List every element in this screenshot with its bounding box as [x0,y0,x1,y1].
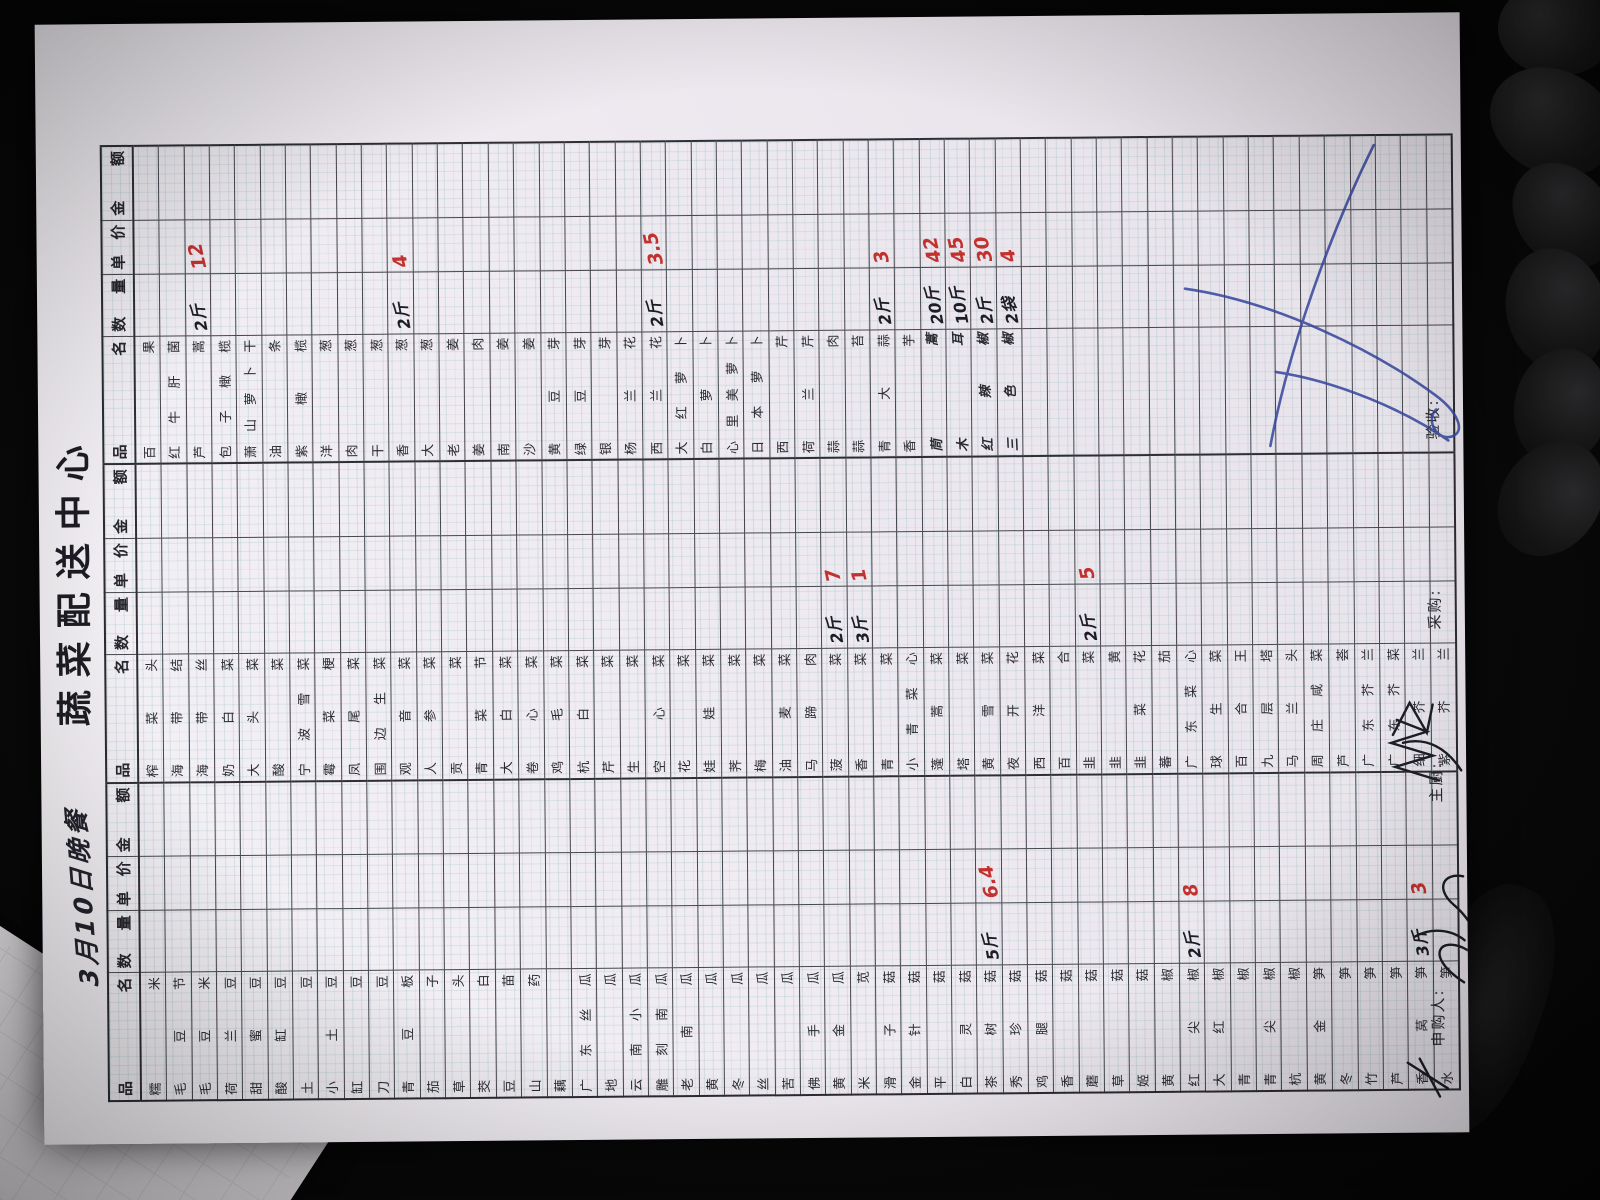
item-name: 油条 [262,335,288,463]
quantity-cell: 5斤 [976,903,1002,965]
quantity-cell [773,905,799,967]
amount-cell [159,145,185,219]
quantity-cell [1401,263,1427,325]
quantity-cell [999,585,1025,647]
amount-cell [665,141,691,215]
amount-cell [361,144,387,218]
quantity-cell [1052,902,1078,964]
unit-price-cell [1176,529,1202,583]
header-price: 单价 [107,857,139,911]
quantity-cell [495,907,521,969]
item-name: 酸缸豆 [267,971,293,1099]
item-name: 秀珍菇 [1002,965,1028,1093]
item-name: 日本萝卜 [743,331,769,459]
unit-price-cell [748,851,774,905]
item-name [1149,327,1175,455]
inspector-label: 验收: [1422,398,1443,439]
unit-price-cell: 42 [919,213,945,267]
unit-price-cell: 3 [869,213,895,267]
amount-cell [212,463,238,537]
amount-cell [189,782,215,856]
unit-price-cell [618,534,644,588]
quantity-cell [1303,582,1329,644]
quantity-cell [162,592,188,654]
unit-price-cell [1252,528,1278,582]
amount-cell [1051,774,1077,848]
quantity-cell [545,907,571,969]
item-name: 竹笋 [1357,962,1383,1090]
unit-price-cell [238,537,264,591]
unit-price-cell [444,854,470,908]
amount-cell [1426,134,1452,208]
item-name: 缸豆 [343,971,369,1099]
quantity-cell [368,908,394,970]
amount-cell [1276,454,1302,528]
item-name: 九层塔 [1253,644,1279,772]
quantity-cell [771,587,797,649]
unit-price-cell [925,850,951,904]
unit-price-cell [1097,211,1123,265]
amount-cell [744,459,770,533]
quantity-cell [1201,583,1227,645]
amount-cell [1400,135,1426,209]
item-name: 黄豆芽 [540,332,566,460]
quantity-cell [1049,584,1075,646]
unit-price-cell [615,216,641,270]
quantity-cell [286,273,312,335]
item-name: 香芋 [895,329,921,457]
amount-cell [412,143,438,217]
item-name: 大头菜 [239,653,265,781]
amount-cell [341,781,367,855]
quantity-cell [748,905,774,967]
quantity-cell [1300,264,1326,326]
unit-price-cell [1350,209,1376,263]
amount-cell [1381,772,1407,846]
quantity-cell [1331,900,1357,962]
item-name: 小土豆 [318,971,344,1099]
quantity-cell [621,906,647,968]
quantity-cell [824,904,850,966]
amount-cell [646,778,672,852]
quantity-cell [695,587,721,649]
amount-cell [1279,772,1305,846]
amount-cell [643,460,669,534]
quantity-cell [1427,263,1453,325]
unit-price-cell [593,534,619,588]
unit-price-cell [517,535,543,589]
item-name: 金针菇 [901,966,927,1094]
unit-price-cell [365,536,391,590]
amount-cell [235,145,261,219]
item-name: 白萝卜 [692,331,718,459]
unit-price-cell [463,217,489,271]
amount-cell [443,780,469,854]
unit-price-cell: 6.4 [976,849,1002,903]
amount-cell [846,458,872,532]
unit-price-cell [1052,848,1078,902]
header-price: 单价 [101,220,133,274]
item-name: 刀豆 [369,971,395,1099]
item-name: 姬菇 [1129,964,1155,1092]
quantity-cell [191,910,217,972]
unit-price-cell [1046,212,1072,266]
unit-price-cell [266,855,292,909]
unit-price-cell [136,538,162,592]
unit-price-cell [793,214,819,268]
quantity-cell [314,591,340,653]
item-name: 藕 [546,969,572,1097]
unit-price-cell [1426,209,1452,263]
amount-cell [1026,775,1052,849]
unit-price-cell [1432,845,1458,899]
item-name: 鸡毛菜 [543,651,569,779]
unit-price-cell [818,214,844,268]
quantity-cell: 3斤 [1407,899,1433,961]
header-amount: 金 额 [106,783,139,857]
item-name: 云南小瓜 [622,968,648,1096]
unit-price-cell [367,854,393,908]
unit-price-cell [545,853,571,907]
quantity-cell [1151,583,1177,645]
item-name [1073,328,1099,456]
unit-price-cell: 5 [1074,530,1100,584]
amount-cell [215,782,241,856]
requester-label: 申购人: [1427,988,1449,1046]
unit-price-cell [393,854,419,908]
item-name: 糯米 [140,973,167,1101]
item-name: 紫橄榄 [287,335,313,463]
item-name: 观音菜 [391,652,417,780]
unit-price-cell [311,218,337,272]
amount-cell [1375,135,1401,209]
unit-price-cell [1148,211,1174,265]
quantity-cell [1047,266,1073,328]
amount-cell [513,142,539,216]
unit-price-cell [669,533,695,587]
unit-price-cell [165,856,191,910]
item-name: 韭黄 [1101,646,1127,774]
item-name: 西兰花 [642,332,668,460]
quantity-cell [875,904,901,966]
item-name: 韭菜 [1075,646,1101,774]
item-name: 冬瓜 [723,967,749,1095]
amount-cell [922,457,948,531]
item-name: 青菜 [873,648,899,776]
amount-cell [133,146,159,220]
unit-price-cell [489,217,515,271]
item-name-handwritten: 三色椒 [994,328,1025,457]
amount-cell [843,139,869,213]
unit-price-cell [948,531,974,585]
item-name: 干葱 [363,334,389,462]
item-name: 海带结 [163,654,189,782]
quantity-cell [467,589,493,651]
quantity-cell [1356,900,1382,962]
quantity-cell [1097,265,1123,327]
unit-price-cell [565,216,591,270]
unit-price-cell [570,853,596,907]
amount-cell [893,139,919,213]
amount-cell [339,462,365,536]
item-name: 荠菜 [721,649,747,777]
quantity-cell: 2斤 [1179,901,1205,963]
quantity-cell [413,271,439,333]
unit-price-cell [1249,210,1275,264]
amount-cell [899,776,925,850]
amount-cell [722,777,748,851]
item-name: 老南瓜 [673,968,699,1096]
quantity-cell [1125,584,1151,646]
item-name: 蒜苔 [844,330,870,458]
unit-price-cell [717,215,743,269]
amount-cell [970,138,996,212]
coil-ring [1498,0,1600,76]
unit-price-cell [520,853,546,907]
item-name: 茄子 [419,970,445,1098]
item-name: 细芥兰 [1405,643,1431,771]
item-name: 大红椒 [1205,963,1231,1091]
photo-of-order-form: 沙 米 大豆 米 廿口 3月10日晚餐 蔬菜配送中心 品 名数量单价金 额品 名… [0,0,1600,1200]
item-name: 黄雪菜 [974,647,1000,775]
unit-price-cell [1128,848,1154,902]
amount-cell [392,780,418,854]
amount-cell [1048,456,1074,530]
item-name [1377,325,1403,453]
amount-cell [539,142,565,216]
unit-price-cell: 12 [185,219,211,273]
unit-price-cell [491,535,517,589]
amount-cell [995,138,1021,212]
amount-cell [564,142,590,216]
amount-cell [541,461,567,535]
amount-cell [871,458,897,532]
quantity-cell [312,272,338,334]
unit-price-cell [1026,849,1052,903]
item-name: 卷心菜 [518,651,544,779]
unit-price-cell [1201,529,1227,583]
item-name: 周庄咸菜 [1303,644,1329,772]
amount-cell [135,464,161,538]
unit-price-cell [187,538,213,592]
unit-price-cell [1122,211,1148,265]
unit-price-cell [973,531,999,585]
amount-cell [364,462,390,536]
quantity-cell [1123,265,1149,327]
quantity-cell [188,592,214,654]
quantity-cell [1199,265,1225,327]
item-name: 鸡腿菇 [1027,965,1053,1093]
quantity-cell [1148,265,1174,327]
quantity-cell [593,588,619,650]
quantity-cell [723,905,749,967]
amount-cell [519,779,545,853]
unit-price-cell [694,533,720,587]
amount-cell [696,777,722,851]
item-name: 白灵菇 [951,965,977,1093]
quantity-cell [1328,582,1354,644]
unit-price-cell [1021,212,1047,266]
unit-price-cell [1102,848,1128,902]
quantity-cell [849,904,875,966]
unit-price-cell [897,531,923,585]
amount-cell [1198,136,1224,210]
item-name [1047,328,1073,456]
unit-price-cell [337,218,363,272]
item-name: 毛豆节 [166,972,192,1100]
quantity-cell [1154,902,1180,964]
item-name [1301,326,1327,454]
amount-cell [1355,772,1381,846]
item-name: 百果 [134,336,161,464]
unit-price-cell [1153,848,1179,902]
amount-cell [589,142,615,216]
quantity-cell [165,910,191,972]
amount-cell [311,144,337,218]
amount-cell [415,462,441,536]
item-name: 西洋菜 [1025,646,1051,774]
quantity-cell [1024,584,1050,646]
unit-price-cell [1381,846,1407,900]
header-qty: 数量 [107,911,140,973]
unit-price-cell [691,215,717,269]
amount-cell [998,457,1024,531]
unit-price-cell [1049,530,1075,584]
item-name: 海带丝 [188,654,214,782]
amount-cell [240,781,266,855]
amount-cell [1299,135,1325,209]
quantity-cell [1306,900,1332,962]
item-name [1351,325,1377,453]
quantity-cell: 2斤 [388,272,414,334]
amount-cell [719,459,745,533]
quantity-cell [444,908,470,970]
unit-price-cell [1024,530,1050,584]
item-name: 平菇 [926,966,952,1094]
amount-cell [668,459,694,533]
item-name: 凤尾菜 [340,652,366,780]
item-name: 银芽 [591,332,617,460]
header-price: 单价 [104,538,136,592]
unit-price-cell [210,219,236,273]
amount-cell [972,457,998,531]
item-name: 荷兰芹 [794,330,820,458]
amount-cell [792,140,818,214]
amount-cell [767,140,793,214]
quantity-cell [517,589,543,651]
item-name: 青豆板 [394,970,420,1098]
quantity-cell [1379,581,1405,643]
item-name: 香菜 [847,648,873,776]
amount-cell [617,460,643,534]
item-name [1225,326,1251,454]
item-name: 青椒 [1230,963,1256,1091]
unit-price-cell [539,216,565,270]
header-amount: 金 额 [103,464,136,538]
amount-cell [691,141,717,215]
unit-price-cell [1328,528,1354,582]
unit-price-cell [390,536,416,590]
amount-cell [1178,773,1204,847]
item-name: 包子橄榄 [211,335,237,463]
amount-cell [1147,137,1173,211]
quantity-cell [137,592,163,654]
amount-cell [567,460,593,534]
quantity-cell [261,273,287,335]
item-name: 紫芥兰 [1430,643,1457,771]
quantity-cell [340,590,366,652]
quantity-cell [571,907,597,969]
quantity-cell [1176,583,1202,645]
amount-cell [1046,138,1072,212]
unit-price-cell [263,537,289,591]
amount-cell [516,461,542,535]
unit-price-cell [289,537,315,591]
amount-cell [164,782,190,856]
quantity-cell [948,585,974,647]
unit-price-cell [1224,210,1250,264]
item-name: 丝瓜 [749,967,775,1095]
item-name [1174,327,1200,455]
quantity-cell [1224,264,1250,326]
item-name: 生菜 [619,650,645,778]
amount-cell [488,143,514,217]
amount-cell [640,141,666,215]
quantity-cell [590,270,616,332]
unit-price-cell [900,850,926,904]
item-name: 黄椒 [1154,964,1180,1092]
item-name: 蒜肉 [819,330,845,458]
quantity-cell [973,585,999,647]
quantity-cell [1227,583,1253,645]
amount-cell [1305,772,1331,846]
unit-price-cell [798,851,824,905]
unit-price-cell [314,537,340,591]
amount-cell [1378,453,1404,527]
unit-price-cell [567,534,593,588]
unit-price-cell [950,849,976,903]
quantity-cell [438,271,464,333]
quantity-cell [317,909,343,971]
item-name: 芦荟 [1329,644,1355,772]
quantity-cell [692,269,718,331]
quantity-cell [441,590,467,652]
quantity-cell [1278,582,1304,644]
amount-cell [468,779,494,853]
unit-price-cell [1378,527,1404,581]
item-name: 大葱 [414,334,440,462]
unit-price-cell [742,215,768,269]
quantity-cell [1382,900,1408,962]
quantity-cell [134,274,160,336]
unit-price-cell [1302,528,1328,582]
unit-price-cell [849,850,875,904]
quantity-cell [565,270,591,332]
quantity-cell [819,268,845,330]
item-name: 黄瓜 [698,968,724,1096]
unit-price-cell [1356,846,1382,900]
item-name: 南姜 [490,333,516,461]
amount-cell [1274,136,1300,210]
quantity-cell [616,270,642,332]
unit-price-cell [1404,527,1430,581]
unit-price-cell [241,856,267,910]
unit-price-cell [773,851,799,905]
item-name: 梅菜 [746,649,772,777]
item-name: 冬笋 [1332,962,1358,1090]
item-name: 塔菜 [949,647,975,775]
item-name: 芦蒿 [186,335,212,463]
